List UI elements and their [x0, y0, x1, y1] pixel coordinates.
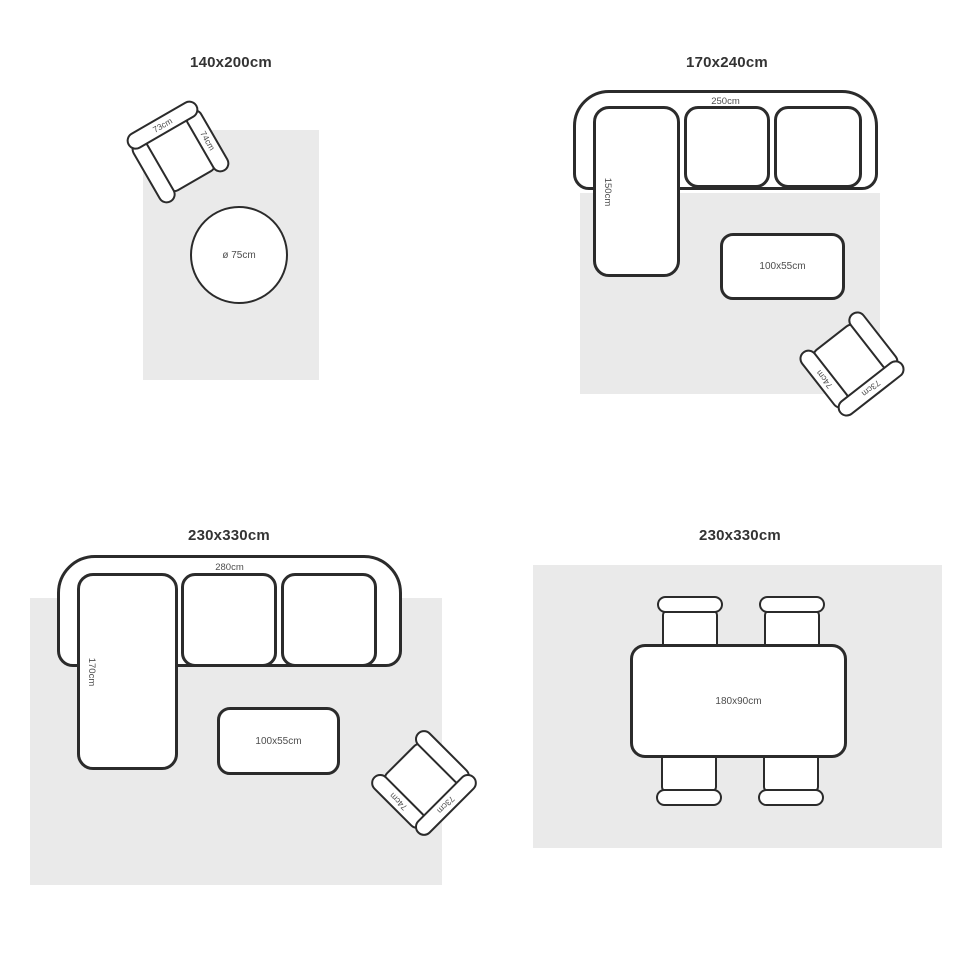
- sofa-cushion: [684, 106, 770, 188]
- rug-size-title: 170x240cm: [627, 54, 827, 71]
- dining-chair: [656, 756, 722, 806]
- chair-seat: [662, 610, 718, 647]
- dining-chair: [759, 596, 825, 646]
- coffee-table: 100x55cm: [720, 233, 845, 300]
- coffee-table-size-label: 100x55cm: [255, 736, 301, 747]
- rug-size-guide: 140x200cm 74cm 73cm ø 75cm 170x240cm 250…: [0, 0, 970, 970]
- chair-backrest: [656, 789, 722, 806]
- sofa-cushion: [181, 573, 277, 667]
- chaise-length-label: 170cm: [86, 657, 97, 686]
- chair-backrest: [759, 596, 825, 613]
- dining-chair: [657, 596, 723, 646]
- round-table: ø 75cm: [190, 206, 288, 304]
- coffee-table: 100x55cm: [217, 707, 340, 775]
- chair-seat: [763, 755, 819, 792]
- chaise-length-label: 150cm: [602, 177, 613, 206]
- sofa-cushion: [281, 573, 377, 667]
- rug-size-title: 230x330cm: [640, 527, 840, 544]
- round-table-size-label: ø 75cm: [222, 250, 255, 261]
- dining-table: 180x90cm: [630, 644, 847, 758]
- chair-seat: [764, 610, 820, 647]
- chair-backrest: [758, 789, 824, 806]
- sofa-width-label: 280cm: [60, 562, 399, 573]
- rug-size-title: 140x200cm: [131, 54, 331, 71]
- dining-table-size-label: 180x90cm: [715, 696, 761, 707]
- rug-size-title: 230x330cm: [129, 527, 329, 544]
- chair-seat: [661, 755, 717, 792]
- sofa-chaise: 150cm: [593, 106, 680, 277]
- sofa-chaise: 170cm: [77, 573, 178, 770]
- sofa-cushion: [774, 106, 862, 188]
- coffee-table-size-label: 100x55cm: [759, 261, 805, 272]
- chair-backrest: [657, 596, 723, 613]
- dining-chair: [758, 756, 824, 806]
